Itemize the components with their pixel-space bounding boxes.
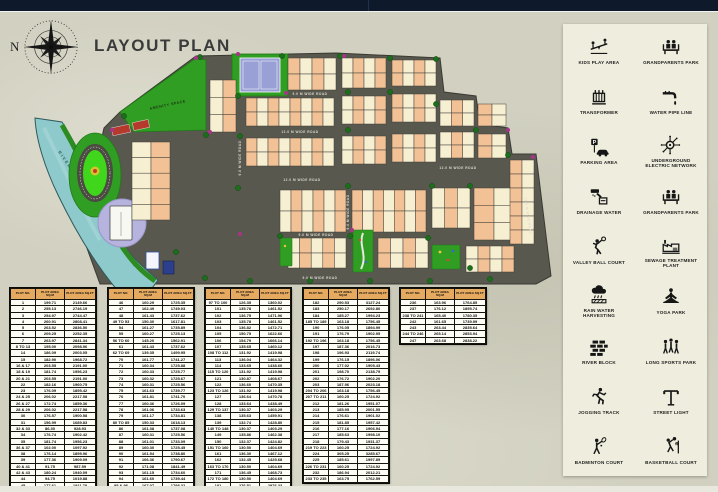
plot-area: 1902.20 [358, 376, 388, 381]
plot-no: 14 [11, 350, 35, 355]
river-block-icon [588, 336, 610, 358]
plot-area: 132.74 [231, 420, 259, 425]
legend-item: WATER PIPE LINE [635, 76, 707, 126]
plot-area: 162.49 [134, 306, 162, 311]
table-row: 201198.702138.79 [304, 369, 388, 374]
plot-no: 55 [109, 331, 133, 336]
table-row: 202176.721902.20 [304, 376, 388, 381]
plot-no: 115 TO 120 [206, 369, 230, 374]
flower-bush-icon [194, 56, 198, 60]
table-row: 237176.121895.74 [401, 306, 485, 311]
plot-area: 86.30 [36, 426, 64, 431]
parking-area-icon: P [588, 136, 610, 158]
tree-icon [197, 54, 202, 59]
tree-icon [235, 185, 240, 190]
table-row: 243263.442835.64 [401, 325, 485, 330]
plot-area: 166.36 [134, 457, 162, 462]
plot-no: 192 TO 196 [304, 338, 328, 343]
table-row: 247263.682838.22 [401, 338, 485, 343]
plot-no: 113 [206, 357, 230, 362]
table-row: 219 TO 223160.251724.92 [304, 445, 388, 450]
plot-no: 202 [304, 376, 328, 381]
flower-bush-icon [236, 52, 240, 56]
plot-area: 1464.32 [260, 357, 290, 362]
table-row: 46160.291725.35 [109, 300, 193, 305]
table-row: 1199.712149.66 [11, 300, 95, 305]
plot-area: 1468.73 [260, 470, 290, 475]
plot-no: 6 [11, 331, 35, 336]
plot-area: 1461.52 [260, 319, 290, 324]
plot-area: 130.37 [231, 407, 259, 412]
tree-icon [425, 235, 430, 240]
plot-area: 2841.34 [65, 338, 95, 343]
plot-area: 1419.98 [260, 350, 290, 355]
table-row: 75161.631739.77 [109, 388, 193, 393]
table-row: 199176.151896.06 [304, 357, 388, 362]
water-pipe-line-icon [660, 86, 682, 108]
plot-area: 1756.45 [358, 388, 388, 393]
road-label: 9.0 M WIDE ROAD [303, 276, 338, 280]
plot-area: 1968.72 [65, 357, 95, 362]
plot-area: 2808.41 [65, 319, 95, 324]
plot-area: 2853.94 [455, 331, 485, 336]
tree-icon [235, 93, 240, 98]
plot-area: 139.35 [134, 350, 162, 355]
plot-area: 1472.71 [260, 325, 290, 330]
plot-area: 2001.55 [358, 407, 388, 412]
plot-area: 1738.80 [163, 451, 193, 456]
utility-building [146, 252, 159, 269]
plot-area: 180.24 [36, 470, 64, 475]
legend-item: GRANDPARENTS PARK [635, 26, 707, 76]
plot-area: 1424.82 [260, 439, 290, 444]
tree-icon [427, 278, 432, 283]
plot-area: 1461.52 [260, 306, 290, 311]
plot-area: 102.00 [36, 445, 64, 450]
plot-no: 4 [11, 319, 35, 324]
tree-icon [367, 278, 372, 283]
plot-area: 160.32 [134, 376, 162, 381]
table-row: 32 & 3386.30928.93 [11, 426, 95, 431]
table-row: 31156.991689.83 [11, 420, 95, 425]
table-row: 192 TO 196163.181756.45 [304, 338, 388, 343]
plot-area: 1756.45 [358, 319, 388, 324]
table-row: 71160.341725.88 [109, 363, 193, 368]
badminton-court-icon [588, 436, 610, 458]
plot-area: 1438.49 [260, 401, 290, 406]
table-row: 3254.972744.47 [11, 313, 95, 318]
plot-area: 160.36 [134, 401, 162, 406]
plot-area: 1726.09 [163, 401, 193, 406]
tree-icon [433, 56, 438, 61]
plot-area: 263.44 [426, 325, 454, 330]
column-header: PLOT AREA SQ.FT [455, 289, 485, 299]
table-row: 39177.361909.09 [11, 457, 95, 462]
table-row: 94161.601739.44 [109, 476, 193, 481]
plot-area: 1724.92 [358, 445, 388, 450]
plot-no: 73 [109, 376, 133, 381]
plot-no: 31 [11, 420, 35, 425]
plot-area: 2746.19 [65, 306, 95, 311]
plot-no: 92 [109, 464, 133, 469]
tree-icon [121, 113, 126, 118]
plot-area: 160.34 [134, 363, 162, 368]
plot-no: 183 [304, 306, 328, 311]
plot-area: 987.59 [65, 464, 95, 469]
table-row: 197187.362016.73 [304, 344, 388, 349]
plot-no: 97 TO 100 [206, 300, 230, 305]
plot-area: 150.30 [134, 319, 162, 324]
layout-plan-poster: N LAYOUT PLAN RIVER RIVER RIVER AMENITY … [0, 0, 718, 492]
plot-area: 1499.95 [163, 350, 193, 355]
table-row: 5263.522836.50 [11, 325, 95, 330]
table-row: 123 TO 126131.921419.98 [206, 388, 290, 393]
plot-no: 76 [109, 394, 133, 399]
table-row: 226 TO 231160.251724.92 [304, 464, 388, 469]
plot-no: 79 [109, 413, 133, 418]
table-row: 72160.331725.77 [109, 369, 193, 374]
street-light-icon [660, 386, 682, 408]
plot-no: 7 [11, 338, 35, 343]
plot-no: 114 [206, 363, 230, 368]
table-row: 54161.271735.89 [109, 325, 193, 330]
plot-area: 1739.99 [455, 319, 485, 324]
plot-no: 34 [11, 432, 35, 437]
legend-label: SEWAGE TREATMENT PLANT [642, 258, 700, 269]
tree-icon [173, 249, 178, 254]
table-row: 2255.132746.19 [11, 306, 95, 311]
plot-area: 1467.12 [260, 451, 290, 456]
plot-no: 197 [304, 344, 328, 349]
tree-icon [337, 53, 342, 58]
table-row: 36 & 37102.001097.92 [11, 445, 95, 450]
plot-area: 1749.03 [163, 306, 193, 311]
table-row: 204 TO 206163.181756.45 [304, 388, 388, 393]
water-tank [163, 261, 174, 274]
plot-no: 161 [206, 451, 230, 456]
plot-area: 2138.79 [358, 369, 388, 374]
plot-no: 36 & 37 [11, 445, 35, 450]
plot-area: 186.94 [329, 470, 357, 475]
rain-water-harvesting-icon [588, 284, 610, 306]
kids-play-area-icon [588, 36, 610, 58]
plot-area: 161.43 [134, 313, 162, 318]
plot-no: 233 TO 235 [304, 476, 328, 481]
plot-no: 77 [109, 401, 133, 406]
table-row: 140 TO 148130.371403.29 [206, 426, 290, 431]
legend-item: UNDERGROUND ELECTRIC NETWORK [635, 126, 707, 176]
plot-area: 1896.06 [358, 357, 388, 362]
legend-item: RIVER BLOCK [563, 326, 635, 376]
plot-area: 250.17 [329, 306, 357, 311]
plot-area: 131.92 [231, 388, 259, 393]
table-row: 114133.651438.60 [206, 363, 290, 368]
table-row: 4494.751019.88 [11, 476, 95, 481]
plot-area: 161.15 [134, 470, 162, 475]
plot-area: 1994.23 [358, 313, 388, 318]
plot-area: 1906.94 [358, 426, 388, 431]
plot-area: 1462.38 [260, 432, 290, 437]
flower-bush-icon [284, 91, 288, 95]
table-row: 34176.741902.42 [11, 432, 95, 437]
plot-area: 1894.99 [358, 325, 388, 330]
plot-area: 161.27 [134, 325, 162, 330]
plot-area: 3127.24 [358, 300, 388, 305]
plot-no: 61 [109, 344, 133, 349]
plot-area: 1998.10 [358, 432, 388, 437]
plot-no: 162 [206, 457, 230, 462]
tree-icon [203, 132, 208, 137]
plot-area: 135.63 [231, 413, 259, 418]
table-row: 35181.741956.23 [11, 439, 95, 444]
table-row: 129 TO 137130.371403.29 [206, 407, 290, 412]
plot-no: 163 TO 170 [206, 464, 230, 469]
plot-area: 177.02 [329, 363, 357, 368]
plot-area: 1419.98 [260, 388, 290, 393]
table-row: 73160.321725.67 [109, 376, 193, 381]
plot-area: 161.38 [134, 426, 162, 431]
plot-area: 161.17 [134, 413, 162, 418]
legend-item: BADMINTON COURT [563, 426, 635, 476]
plot-area: 1957.42 [358, 420, 388, 425]
plot-area: 1895.42 [65, 388, 95, 393]
legend-label: UNDERGROUND ELECTRIC NETWORK [642, 158, 700, 169]
plot-area: 160.25 [329, 394, 357, 399]
plot-area: 1940.09 [65, 470, 95, 475]
yoga-park-icon [660, 286, 682, 308]
tree-icon [237, 133, 242, 138]
flower-bush-icon [350, 228, 354, 232]
plot-area: 1741.70 [163, 394, 193, 399]
plot-area: 171.08 [134, 464, 162, 469]
table-row: 93161.151734.60 [109, 470, 193, 475]
legend-item: BASKETBALL COURT [635, 426, 707, 476]
plot-no: 151 TO 160 [206, 445, 230, 450]
column-header: PLOT NO. [304, 289, 328, 299]
plot-area: 1960.75 [65, 382, 95, 387]
plot-area: 1428.80 [260, 420, 290, 425]
plot-area: 181.74 [36, 369, 64, 374]
column-header: PLOT AREA SQ.M [329, 289, 357, 299]
plot-area: 165.40 [426, 313, 454, 318]
table-row: 200177.021905.43 [304, 363, 388, 368]
plot-no: 40 & 41 [11, 464, 35, 469]
table-row: 127136.641470.78 [206, 394, 290, 399]
plot-area: 2838.22 [455, 338, 485, 343]
plot-table-5: PLOT NO.PLOT AREA SQ.MPLOT AREA SQ.FT236… [400, 288, 486, 344]
plot-area: 176.61 [329, 413, 357, 418]
tree-icon [202, 275, 207, 280]
table-row: 128133.641438.49 [206, 401, 290, 406]
plot-no: 150 [206, 439, 230, 444]
plot-no: 218 [304, 439, 328, 444]
table-row: 78161.061733.63 [109, 407, 193, 412]
plot-area: 160.27 [134, 331, 162, 336]
table-row: 103135.781461.52 [206, 319, 290, 324]
grandparents-park-icon [660, 186, 682, 208]
table-row: 49 TO 53150.301617.81 [109, 319, 193, 324]
plot-area: 91.75 [36, 464, 64, 469]
plot-area: 1780.35 [455, 313, 485, 318]
column-header: PLOT AREA SQ.FT [260, 289, 290, 299]
plot-area: 182.16 [36, 382, 64, 387]
table-row: 207 TO 211160.251724.92 [304, 394, 388, 399]
plot-area: 206.02 [36, 407, 64, 412]
table-row: 224305.253285.67 [304, 451, 388, 456]
plot-area: 172.74 [36, 401, 64, 406]
plot-area: 136.60 [231, 382, 259, 387]
plot-no: 75 [109, 388, 133, 393]
plot-no: 127 [206, 394, 230, 399]
plot-area: 179.43 [329, 439, 357, 444]
plot-no: 26 & 27 [11, 401, 35, 406]
plot-no: 3 [11, 313, 35, 318]
plot-no: 138 [206, 413, 230, 418]
plot-area: 126.35 [231, 300, 259, 305]
table-row: 40 & 4191.75987.59 [11, 464, 95, 469]
plot-area: 135.78 [231, 319, 259, 324]
table-row: 104136.821472.71 [206, 325, 290, 330]
plot-no: 225 [304, 457, 328, 462]
plot-no: 190 [304, 325, 328, 330]
plot-no: 89 [109, 445, 133, 450]
plot-area: 209.25 [36, 331, 64, 336]
tree-icon [387, 89, 392, 94]
legend-label: RAIN WATER HARVESTING [570, 308, 628, 319]
plot-area: 1737.62 [163, 344, 193, 349]
plot-area: 203.55 [36, 363, 64, 368]
drainage-water-icon [588, 186, 610, 208]
table-row: 225185.611997.89 [304, 457, 388, 462]
plot-no: 207 TO 211 [304, 394, 328, 399]
plot-no: 70 [109, 357, 133, 362]
plot-area: 161.77 [134, 357, 162, 362]
plot-area: 1956.23 [65, 439, 95, 444]
plot-no: 232 [304, 470, 328, 475]
table-row: 236163.961764.85 [401, 300, 485, 305]
table-row: 190176.051894.99 [304, 325, 388, 330]
plot-no: 102 [206, 313, 230, 318]
tree-icon [345, 183, 350, 188]
plot-area: 176.79 [329, 331, 357, 336]
table-row: 183250.172692.80 [304, 306, 388, 311]
table-row: 102136.751471.96 [206, 313, 290, 318]
plot-area: 1408.67 [260, 376, 290, 381]
plot-no: 236 [401, 300, 425, 305]
plot-table-3: PLOT NO.PLOT AREA SQ.MPLOT AREA SQ.FT97 … [205, 288, 291, 489]
plot-no: 216 [304, 426, 328, 431]
plot-area: 1425.68 [260, 457, 290, 462]
table-row: 232186.942012.21 [304, 470, 388, 475]
plot-area: 161.65 [426, 319, 454, 324]
plot-area: 1019.88 [65, 476, 95, 481]
plot-area: 1460.12 [260, 344, 290, 349]
plot-no: 44 [11, 476, 35, 481]
plot-no: 91 [109, 457, 133, 462]
plot-area: 163.18 [329, 338, 357, 343]
plot-area: 136.82 [231, 325, 259, 330]
plot-area: 145.20 [134, 338, 162, 343]
plot-area: 1724.92 [358, 464, 388, 469]
plot-no: 49 TO 53 [109, 319, 133, 324]
table-row: 42 & 43180.241940.09 [11, 470, 95, 475]
plot-area: 254.97 [36, 313, 64, 318]
legend-item: RAIN WATER HARVESTING [563, 276, 635, 326]
legend-item: VALLEY BALL COURT [563, 226, 635, 276]
table-row: 149135.861462.38 [206, 432, 290, 437]
long-sports-park-icon [660, 336, 682, 358]
column-header: PLOT AREA SQ.M [426, 289, 454, 299]
plot-area: 187.36 [329, 344, 357, 349]
plot-area: 1724.92 [358, 394, 388, 399]
legend-label: YOGA PARK [642, 310, 700, 315]
table-row: 38176.141895.96 [11, 451, 95, 456]
legend-label: BADMINTON COURT [570, 460, 628, 465]
plot-area: 176.72 [329, 376, 357, 381]
plot-area: 1931.37 [358, 439, 388, 444]
jogging-track-icon [588, 386, 610, 408]
plot-no: 226 TO 231 [304, 464, 328, 469]
plot-area: 1459.91 [260, 413, 290, 418]
plot-area: 135.78 [231, 306, 259, 311]
plot-area: 203.55 [36, 376, 64, 381]
legend-label: VALLEY BALL COURT [570, 260, 628, 265]
plot-no: 56 TO 60 [109, 338, 133, 343]
table-row: 108 TO 112131.921419.98 [206, 350, 290, 355]
svg-text:P: P [593, 140, 597, 146]
plot-no: 54 [109, 325, 133, 330]
plot-area: 1737.08 [163, 426, 193, 431]
plot-area: 135.86 [231, 432, 259, 437]
grandparents-park-icon [660, 36, 682, 58]
tree-icon [345, 89, 350, 94]
plot-no: 149 [206, 432, 230, 437]
plot-area: 1739.44 [163, 476, 193, 481]
plot-no: 42 & 43 [11, 470, 35, 475]
plot-area: 928.93 [65, 426, 95, 431]
plot-area: 136.64 [231, 394, 259, 399]
plot-area: 1741.27 [163, 357, 193, 362]
plot-area: 131.92 [231, 350, 259, 355]
table-row: 15182.901968.72 [11, 357, 95, 362]
underground-electric-network-icon [660, 134, 682, 156]
plot-area: 2119.74 [358, 350, 388, 355]
plot-area: 130.50 [231, 464, 259, 469]
plot-area: 1725.45 [163, 445, 193, 450]
plot-area: 161.63 [134, 388, 162, 393]
table-row: 215181.851957.42 [304, 420, 388, 425]
plot-area: 260.91 [36, 319, 64, 324]
plot-area: 1734.81 [163, 413, 193, 418]
plot-no: 107 [206, 344, 230, 349]
plot-area: 2023.18 [358, 382, 388, 387]
plot-area: 181.26 [329, 401, 357, 406]
table-row: 26 & 27172.741859.36 [11, 401, 95, 406]
legend-label: STREET LIGHT [642, 410, 700, 415]
legend-label: PARKING AREA [570, 160, 628, 165]
plot-area: 1438.60 [260, 363, 290, 368]
table-row: 20 & 21203.552191.00 [11, 376, 95, 381]
plot-area: 3285.67 [358, 451, 388, 456]
tennis-court [240, 58, 280, 92]
plot-no: 199 [304, 357, 328, 362]
plot-no: 172 TO 180 [206, 476, 230, 481]
table-row: 74160.311725.56 [109, 382, 193, 387]
plot-area: 2003.05 [65, 350, 95, 355]
plot-area: 136.45 [231, 470, 259, 475]
plot-no: 18 & 19 [11, 369, 35, 374]
plot-area: 305.25 [329, 451, 357, 456]
